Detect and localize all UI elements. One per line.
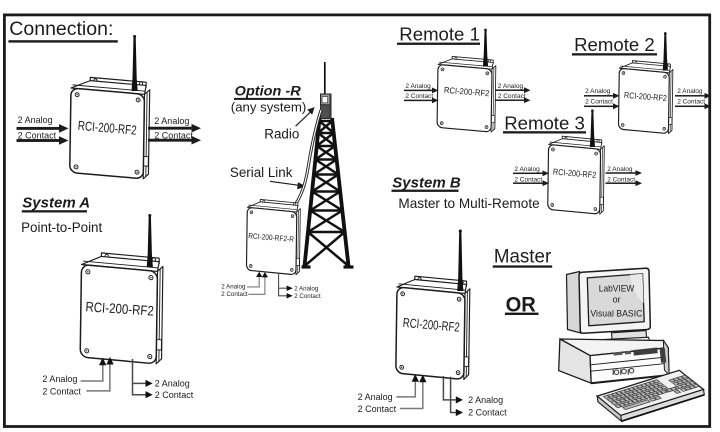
svg-text:Remote 1: Remote 1	[399, 23, 480, 44]
svg-text:System B: System B	[392, 174, 461, 191]
svg-text:(any system): (any system)	[231, 100, 306, 115]
svg-text:2 Analog: 2 Analog	[498, 83, 524, 90]
svg-text:2 Analog: 2 Analog	[42, 374, 77, 384]
svg-text:Remote 2: Remote 2	[574, 34, 655, 55]
svg-text:2 Contact: 2 Contact	[405, 93, 433, 100]
svg-text:2 Analog: 2 Analog	[155, 378, 190, 388]
svg-text:Option -R: Option -R	[235, 84, 301, 99]
svg-text:2 Analog: 2 Analog	[358, 392, 393, 402]
svg-text:2 Contact: 2 Contact	[468, 408, 507, 418]
svg-text:2 Contact: 2 Contact	[514, 176, 542, 183]
svg-text:Master: Master	[494, 247, 552, 268]
svg-text:2 Analog: 2 Analog	[468, 395, 503, 405]
svg-text:System A: System A	[22, 195, 90, 212]
svg-text:Remote 3: Remote 3	[504, 113, 585, 134]
svg-text:2 Analog: 2 Analog	[514, 166, 540, 173]
svg-text:2 Contact: 2 Contact	[155, 390, 194, 400]
svg-text:2 Contact: 2 Contact	[42, 386, 81, 396]
svg-text:LabVIEW: LabVIEW	[599, 284, 635, 294]
svg-text:2 Contact: 2 Contact	[294, 293, 321, 300]
svg-text:2 Contact: 2 Contact	[677, 99, 705, 106]
svg-text:2 Analog: 2 Analog	[607, 166, 633, 173]
svg-text:2 Analog: 2 Analog	[154, 116, 189, 126]
svg-text:2 Contact: 2 Contact	[221, 291, 248, 298]
svg-text:Radio: Radio	[264, 127, 299, 142]
svg-text:Visual BASIC: Visual BASIC	[590, 307, 642, 318]
svg-text:2 Analog: 2 Analog	[405, 83, 431, 90]
svg-text:2 Analog: 2 Analog	[294, 286, 319, 293]
svg-text:Connection:: Connection:	[9, 18, 113, 40]
svg-text:2 Contact: 2 Contact	[358, 404, 397, 414]
svg-text:or: or	[613, 295, 621, 305]
svg-text:2 Analog: 2 Analog	[677, 88, 703, 95]
svg-text:Serial Link: Serial Link	[230, 165, 293, 180]
svg-text:2 Contact: 2 Contact	[498, 93, 526, 100]
svg-text:2 Contact: 2 Contact	[607, 176, 635, 183]
svg-text:2 Analog: 2 Analog	[221, 283, 246, 290]
svg-text:2 Analog: 2 Analog	[18, 115, 53, 125]
svg-text:Master to Multi-Remote: Master to Multi-Remote	[398, 196, 539, 211]
svg-text:2 Contact: 2 Contact	[18, 131, 57, 141]
svg-text:2 Contact: 2 Contact	[585, 99, 613, 106]
svg-text:2 Analog: 2 Analog	[585, 88, 611, 95]
svg-text:Point-to-Point: Point-to-Point	[21, 220, 102, 235]
